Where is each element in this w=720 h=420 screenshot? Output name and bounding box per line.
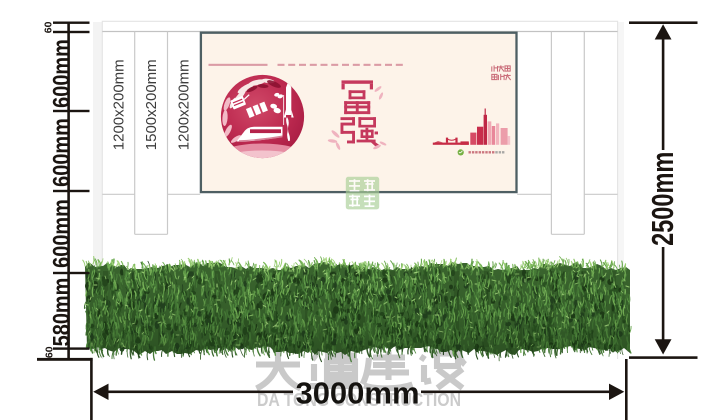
svg-text:3000mm: 3000mm: [295, 376, 419, 411]
svg-text:1200x200mm: 1200x200mm: [175, 59, 192, 150]
svg-text:580mm: 580mm: [48, 278, 75, 347]
svg-text:600mm: 600mm: [48, 39, 75, 108]
svg-text:1200x200mm: 1200x200mm: [111, 59, 128, 150]
svg-text:60: 60: [44, 346, 56, 358]
svg-text:2500mm: 2500mm: [645, 152, 680, 246]
svg-text:1500x200mm: 1500x200mm: [143, 59, 160, 150]
svg-text:600mm: 600mm: [48, 199, 75, 268]
svg-text:60: 60: [43, 21, 55, 33]
svg-text:600mm: 600mm: [48, 118, 75, 187]
